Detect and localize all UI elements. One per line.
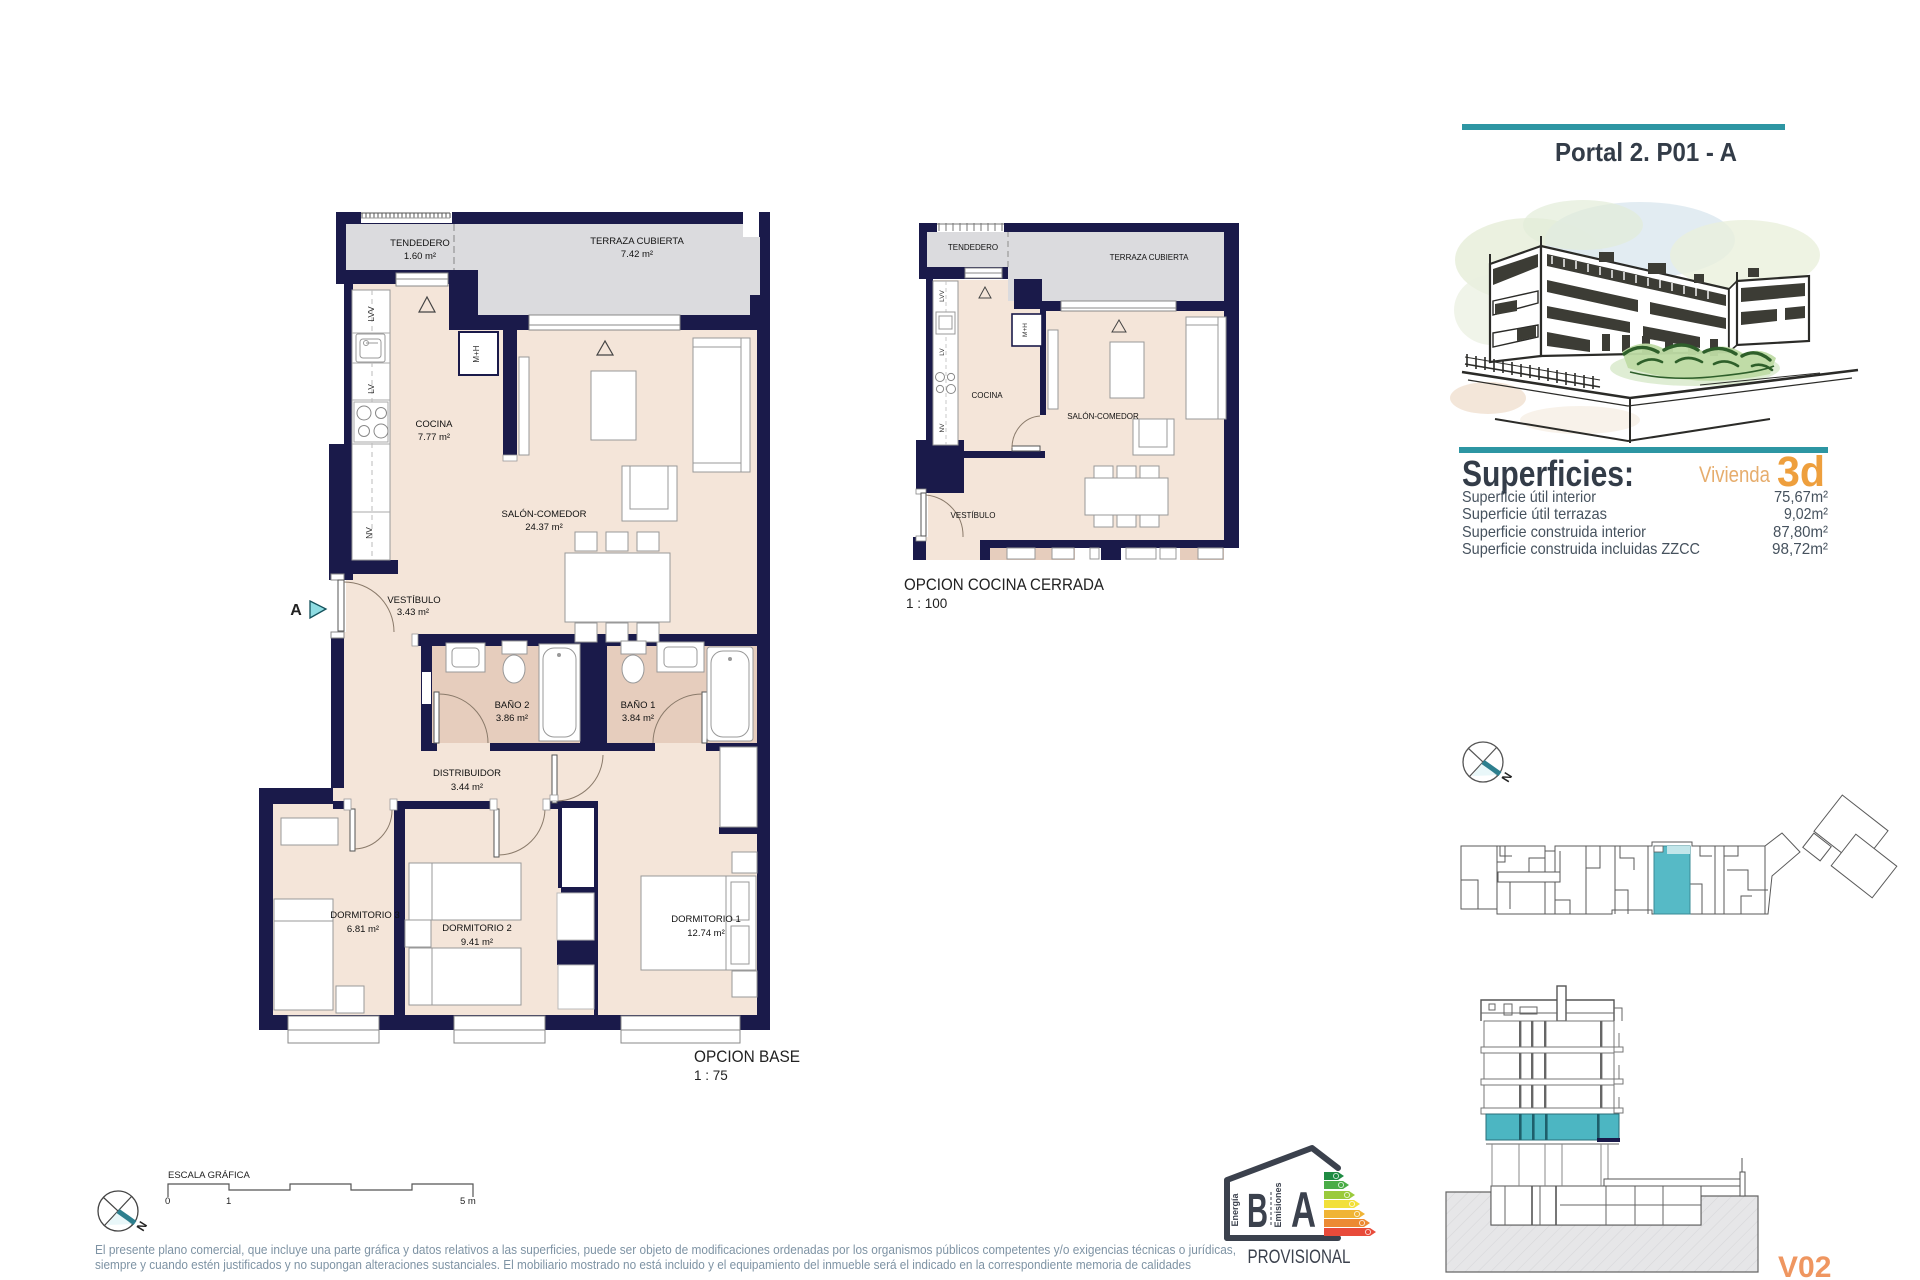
svg-text:BAÑO 2: BAÑO 2 (495, 700, 530, 711)
svg-text:VESTÍBULO: VESTÍBULO (387, 595, 440, 606)
svg-text:Portal 2. P01 - A: Portal 2. P01 - A (1555, 137, 1737, 167)
svg-text:N: N (1499, 770, 1515, 785)
svg-text:A: A (1291, 1182, 1316, 1238)
svg-text:A: A (290, 602, 302, 619)
svg-text:PROVISIONAL: PROVISIONAL (1248, 1247, 1351, 1268)
svg-text:24.37 m²: 24.37 m² (525, 522, 563, 533)
svg-text:TENDEDERO: TENDEDERO (390, 238, 450, 249)
svg-text:siempre y cuando estén justifi: siempre y cuando estén justificados y no… (95, 1257, 1191, 1272)
svg-text:3.86 m²: 3.86 m² (496, 713, 528, 724)
svg-text:98,72m²: 98,72m² (1772, 541, 1829, 558)
svg-text:1.60 m²: 1.60 m² (404, 251, 436, 262)
svg-text:Energía: Energía (1230, 1193, 1240, 1227)
svg-text:1: 1 (226, 1196, 231, 1207)
svg-text:LV: LV (366, 384, 376, 394)
svg-text:M+H: M+H (1022, 323, 1029, 337)
svg-text:3.44 m²: 3.44 m² (451, 782, 483, 793)
svg-text:SALÓN-COMEDOR: SALÓN-COMEDOR (502, 509, 587, 520)
svg-text:7.42 m²: 7.42 m² (621, 249, 653, 260)
svg-text:5 m: 5 m (460, 1196, 476, 1207)
svg-text:DORMITORIO 1: DORMITORIO 1 (671, 914, 741, 925)
svg-text:V02: V02 (1778, 1251, 1831, 1280)
svg-text:Superficie construida incluida: Superficie construida incluidas ZZCC (1462, 541, 1700, 558)
svg-text:M+H: M+H (472, 345, 481, 362)
svg-text:9,02m²: 9,02m² (1784, 506, 1829, 523)
svg-text:N: N (134, 1219, 150, 1234)
svg-text:Superficie útil terrazas: Superficie útil terrazas (1462, 506, 1607, 523)
svg-text:SALÓN-COMEDOR: SALÓN-COMEDOR (1067, 412, 1139, 421)
svg-text:OPCION BASE: OPCION BASE (694, 1047, 800, 1066)
svg-text:87,80m²: 87,80m² (1773, 524, 1829, 541)
svg-text:LVV: LVV (939, 289, 946, 301)
svg-text:1 : 100: 1 : 100 (906, 596, 947, 611)
svg-text:COCINA: COCINA (416, 419, 454, 430)
svg-text:NV: NV (939, 423, 946, 433)
svg-text:LVV: LVV (366, 306, 376, 322)
svg-text:DORMITORIO 3: DORMITORIO 3 (330, 910, 400, 921)
svg-text:7.77 m²: 7.77 m² (418, 432, 450, 443)
svg-text:ESCALA GRÁFICA: ESCALA GRÁFICA (168, 1170, 250, 1181)
svg-text:TERRAZA CUBIERTA: TERRAZA CUBIERTA (1110, 253, 1189, 262)
svg-text:COCINA: COCINA (971, 391, 1003, 400)
svg-text:TENDEDERO: TENDEDERO (948, 243, 998, 252)
svg-text:LV: LV (939, 348, 946, 356)
svg-text:Superficie construida interior: Superficie construida interior (1462, 524, 1647, 541)
svg-text:El presente plano comercial, q: El presente plano comercial, que incluye… (95, 1242, 1236, 1257)
svg-text:0: 0 (165, 1196, 170, 1207)
svg-text:1 : 75: 1 : 75 (694, 1068, 728, 1083)
svg-text:DORMITORIO 2: DORMITORIO 2 (442, 923, 512, 934)
svg-text:3.84 m²: 3.84 m² (622, 713, 654, 724)
svg-text:B: B (1247, 1185, 1268, 1238)
svg-text:Superficie útil interior: Superficie útil interior (1462, 489, 1597, 506)
svg-text:VESTÍBULO: VESTÍBULO (951, 511, 996, 520)
svg-text:9.41 m²: 9.41 m² (461, 937, 493, 948)
svg-text:75,67m²: 75,67m² (1774, 489, 1829, 506)
svg-text:12.74 m²: 12.74 m² (687, 928, 725, 939)
svg-text:6.81 m²: 6.81 m² (347, 924, 379, 935)
svg-text:3.43 m²: 3.43 m² (397, 607, 429, 618)
svg-text:Vivienda: Vivienda (1699, 462, 1771, 487)
svg-text:DISTRIBUIDOR: DISTRIBUIDOR (433, 768, 501, 779)
svg-text:TERRAZA CUBIERTA: TERRAZA CUBIERTA (590, 236, 684, 247)
svg-text:Superficies:: Superficies: (1462, 453, 1634, 494)
svg-text:OPCION COCINA CERRADA: OPCION COCINA CERRADA (904, 575, 1105, 594)
svg-text:Emisiones: Emisiones (1273, 1182, 1283, 1227)
svg-text:BAÑO 1: BAÑO 1 (621, 700, 656, 711)
svg-text:NV: NV (364, 527, 374, 539)
